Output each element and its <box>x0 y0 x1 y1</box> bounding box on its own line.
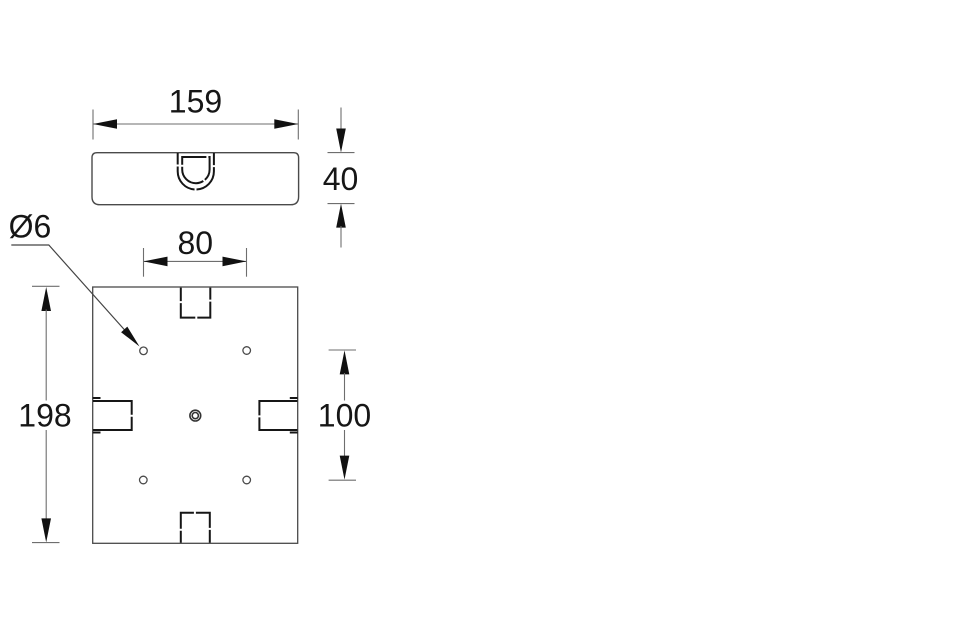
svg-text:Ø6: Ø6 <box>9 209 52 245</box>
svg-text:80: 80 <box>178 225 214 261</box>
svg-text:198: 198 <box>18 397 71 433</box>
svg-text:40: 40 <box>323 161 359 197</box>
svg-text:100: 100 <box>318 398 371 434</box>
svg-text:159: 159 <box>169 84 222 120</box>
